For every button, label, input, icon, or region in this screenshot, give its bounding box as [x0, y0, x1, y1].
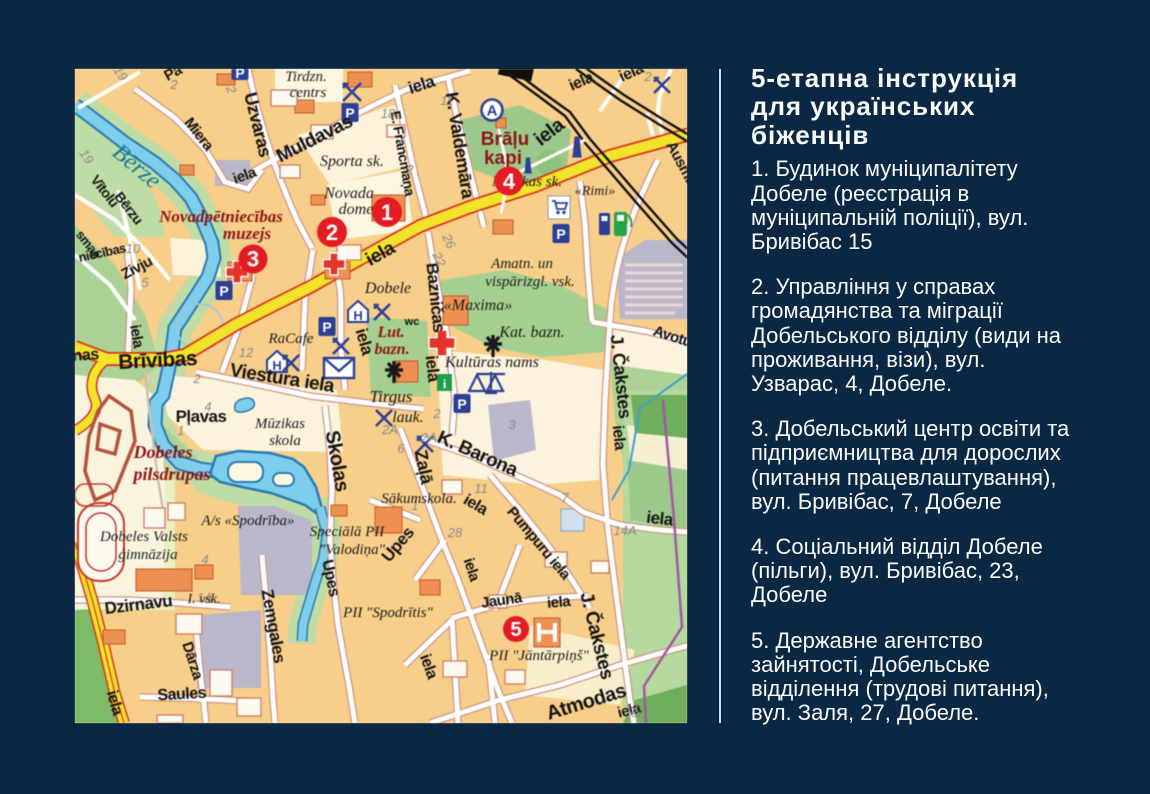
- svg-text:4: 4: [204, 399, 211, 414]
- svg-text:vispārizgl. vsk.: vispārizgl. vsk.: [485, 274, 575, 290]
- svg-text:kapi: kapi: [484, 148, 522, 169]
- svg-text:Lut.: Lut.: [376, 324, 404, 341]
- svg-text:14A: 14A: [613, 523, 636, 538]
- svg-text:Speciālā PII: Speciālā PII: [310, 524, 386, 540]
- svg-text:A/s «Spodrība»: A/s «Spodrība»: [201, 513, 295, 529]
- svg-text:Dobele: Dobele: [364, 280, 411, 297]
- svg-text:10: 10: [126, 241, 141, 256]
- svg-text:A: A: [487, 103, 498, 120]
- svg-text:2: 2: [169, 77, 178, 92]
- svg-text:Sporta sk.: Sporta sk.: [320, 153, 384, 170]
- svg-text:P: P: [219, 283, 228, 299]
- svg-text:nas: nas: [75, 346, 100, 365]
- svg-text:11: 11: [440, 93, 454, 108]
- svg-text:2A: 2A: [420, 430, 437, 445]
- svg-text:18: 18: [381, 106, 396, 121]
- svg-text:dome: dome: [339, 201, 374, 218]
- svg-text:bazn.: bazn.: [374, 341, 409, 358]
- svg-text:«Rimi»: «Rimi»: [575, 184, 615, 199]
- svg-text:7: 7: [561, 490, 569, 505]
- svg-text:Novada: Novada: [323, 185, 374, 202]
- svg-text:RaCafe: RaCafe: [268, 331, 314, 347]
- svg-text:centrs: centrs: [290, 85, 327, 101]
- svg-text:PII "Spodrītis": PII "Spodrītis": [342, 605, 433, 621]
- svg-text:P: P: [556, 226, 565, 242]
- svg-text:Sākumskola.: Sākumskola.: [381, 491, 456, 507]
- svg-text:28: 28: [447, 525, 463, 540]
- svg-text:2: 2: [326, 220, 338, 245]
- svg-text:Dobeles: Dobeles: [133, 442, 193, 462]
- svg-text:pilsdrupas: pilsdrupas: [131, 464, 210, 484]
- svg-text:Tirdzn.: Tirdzn.: [285, 69, 327, 85]
- svg-text:Tirgus: Tirgus: [370, 387, 413, 406]
- svg-text:Amatn. un: Amatn. un: [490, 256, 553, 272]
- svg-text:ģimnāzija: ģimnāzija: [118, 547, 177, 563]
- svg-text:3: 3: [247, 247, 259, 272]
- svg-text:Dobeles Valsts: Dobeles Valsts: [99, 529, 188, 545]
- svg-text:H: H: [353, 308, 362, 323]
- svg-text:PII "Jāntārpiņš": PII "Jāntārpiņš": [488, 648, 589, 664]
- svg-text:Kultūras nams: Kultūras nams: [444, 354, 539, 371]
- svg-text:Mūzikas: Mūzikas: [254, 416, 305, 432]
- svg-text:4: 4: [503, 169, 516, 194]
- svg-text:5: 5: [141, 275, 149, 290]
- svg-text:1: 1: [177, 423, 184, 438]
- svg-text:Kat. bazn.: Kat. bazn.: [498, 324, 564, 341]
- svg-text:Saules: Saules: [157, 685, 207, 705]
- svg-text:3: 3: [508, 417, 516, 432]
- svg-text:P: P: [235, 69, 244, 81]
- svg-text:wc: wc: [404, 316, 420, 328]
- svg-text:2: 2: [643, 69, 652, 84]
- svg-text:lauk.: lauk.: [392, 409, 424, 426]
- svg-text:P: P: [457, 396, 466, 412]
- svg-text:iela: iela: [546, 593, 572, 612]
- svg-text:«Maxima»: «Maxima»: [444, 297, 512, 314]
- svg-text:12: 12: [239, 345, 254, 360]
- svg-text:4: 4: [201, 552, 208, 567]
- svg-text:I. vsk.: I. vsk.: [186, 592, 220, 607]
- svg-text:P: P: [322, 319, 331, 335]
- svg-text:iela: iela: [422, 354, 444, 383]
- svg-text:5: 5: [510, 619, 521, 641]
- svg-text:11: 11: [474, 481, 488, 496]
- svg-text:muzejs: muzejs: [223, 224, 272, 243]
- svg-text:2: 2: [405, 162, 414, 177]
- svg-text:iela: iela: [645, 508, 674, 530]
- svg-text:1: 1: [381, 200, 393, 225]
- svg-text:6: 6: [397, 441, 405, 456]
- svg-text:2: 2: [192, 371, 201, 386]
- svg-text:Brīvības: Brīvības: [118, 347, 198, 374]
- svg-text:2: 2: [432, 406, 441, 421]
- svg-text:"Valodiņa": "Valodiņa": [319, 542, 386, 558]
- svg-text:iela: iela: [609, 424, 629, 451]
- svg-text:skola: skola: [269, 433, 301, 449]
- svg-text:Brāļu: Brāļu: [481, 129, 530, 150]
